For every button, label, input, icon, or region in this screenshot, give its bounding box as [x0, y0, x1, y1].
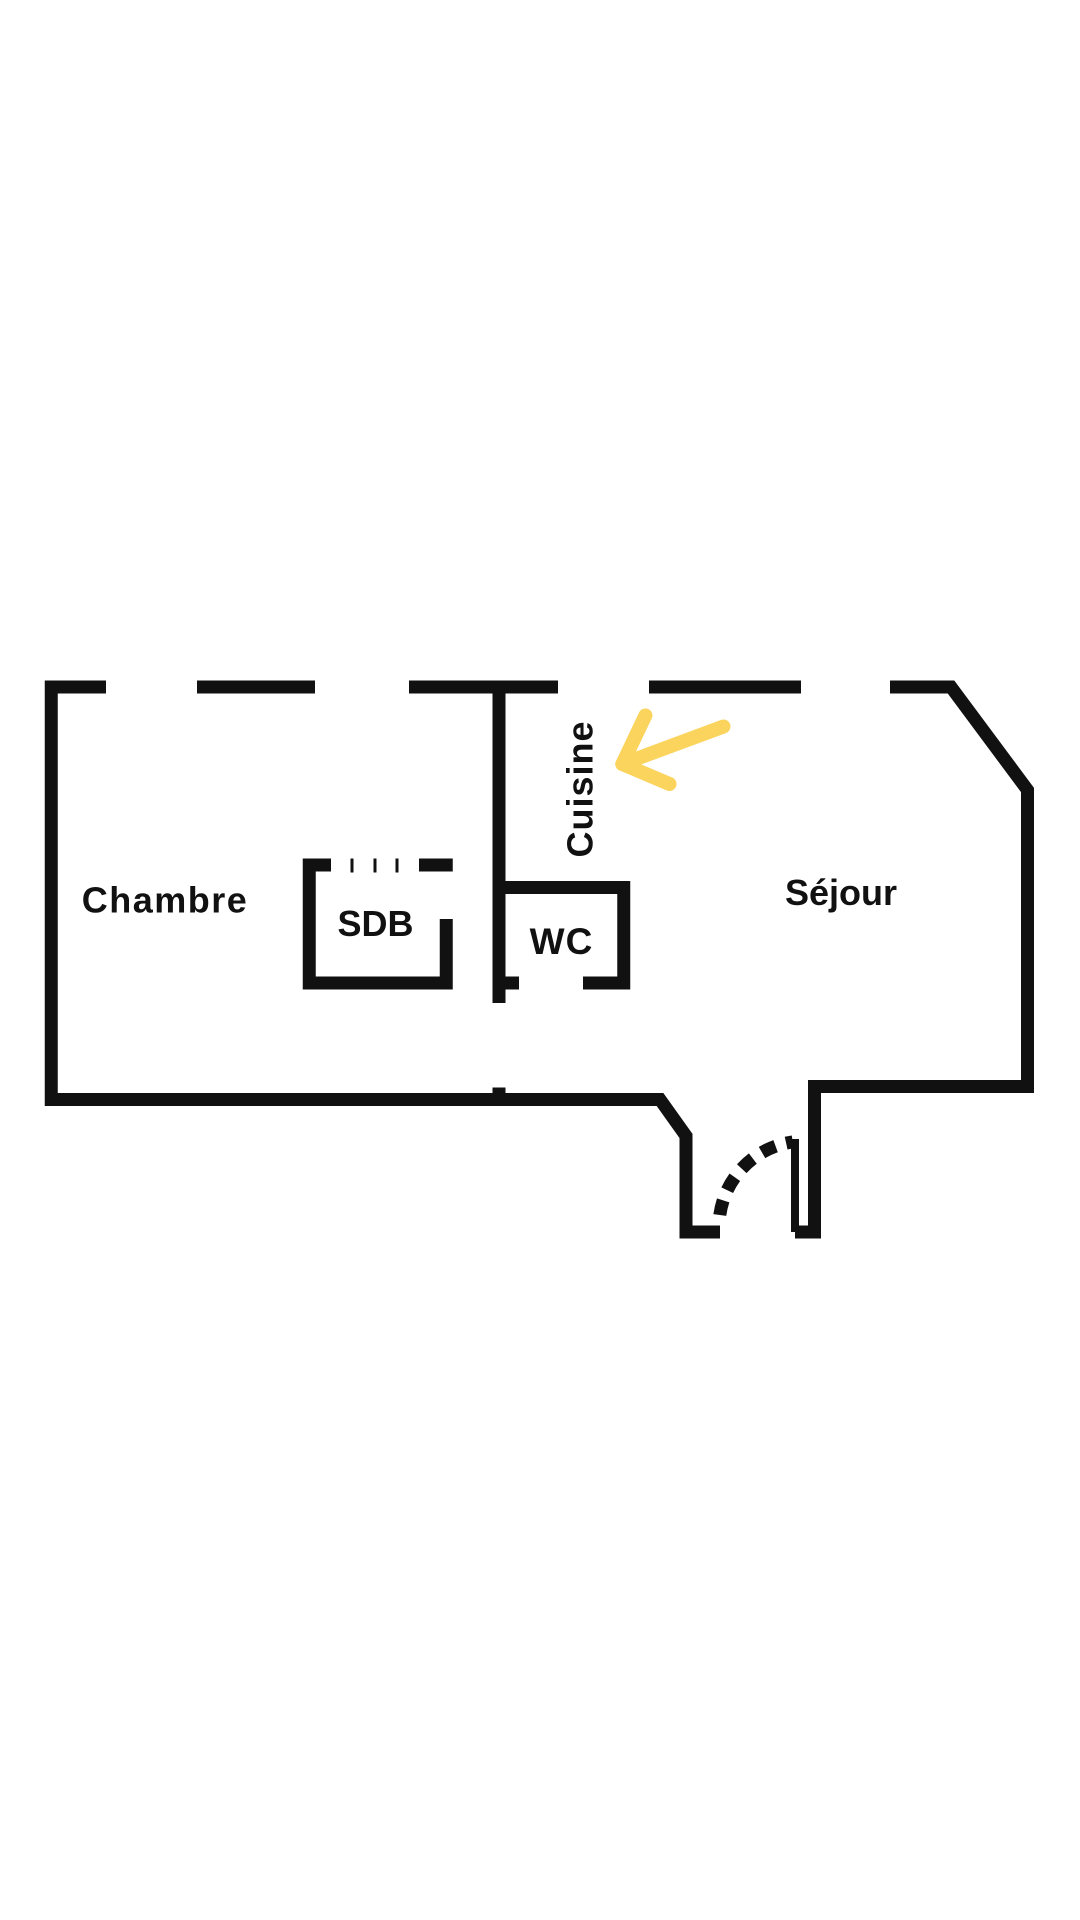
svg-text:Chambre: Chambre [82, 880, 249, 921]
svg-text:WC: WC [530, 921, 594, 962]
svg-text:Séjour: Séjour [785, 872, 897, 913]
svg-text:SDB: SDB [337, 903, 413, 944]
svg-text:Cuisine: Cuisine [560, 720, 601, 857]
